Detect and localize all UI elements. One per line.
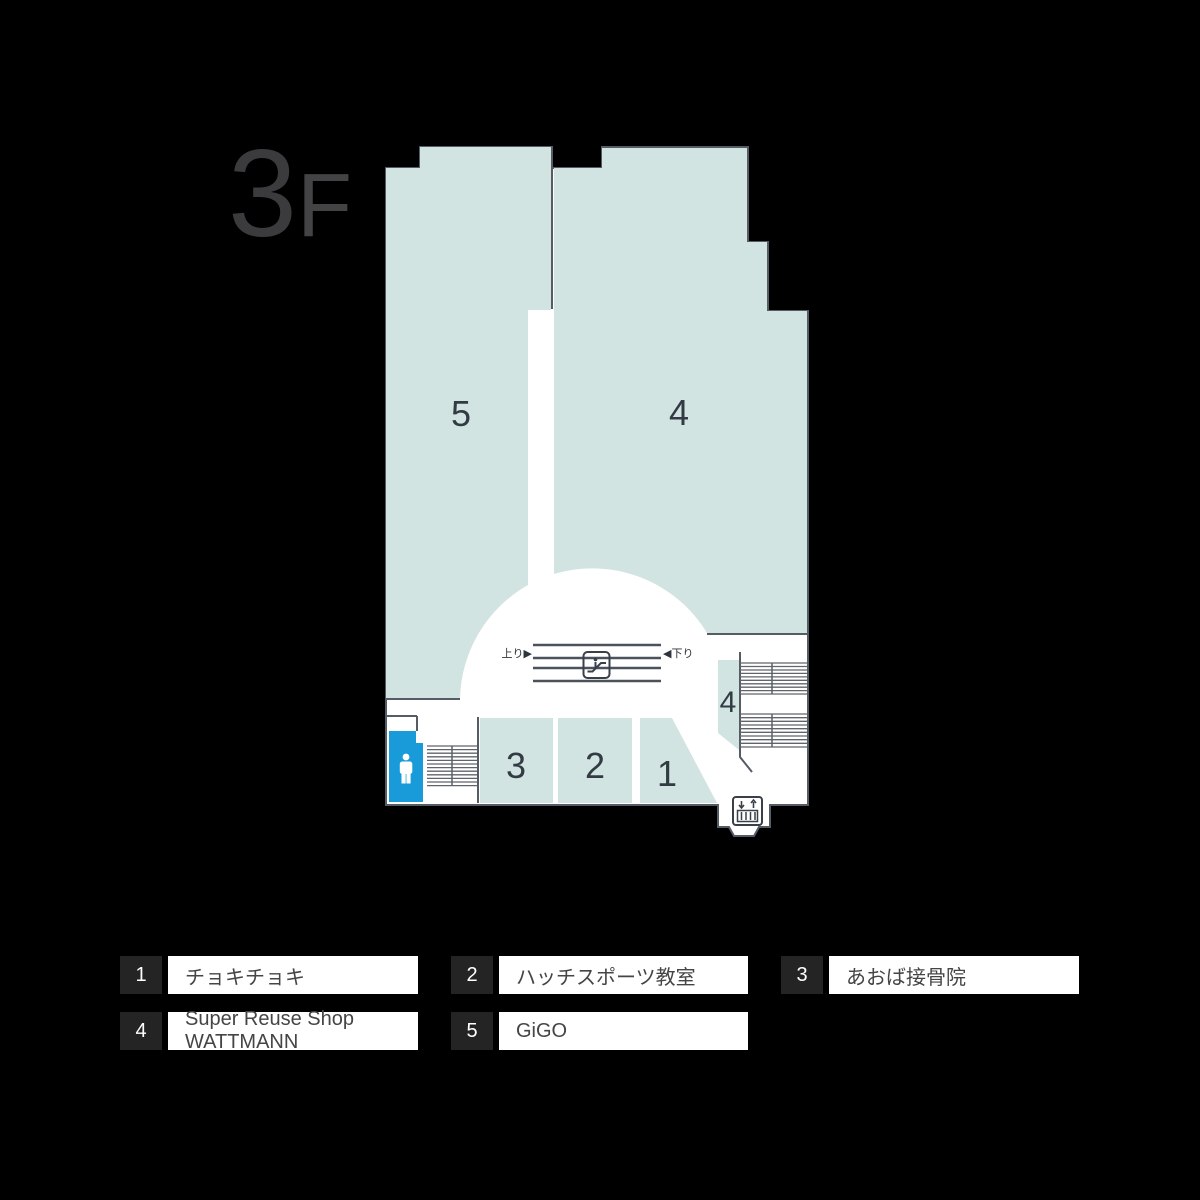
escalator-up-label: 上り▶ xyxy=(502,647,533,660)
area-label-4-annex: 4 xyxy=(720,686,737,719)
escalator-down-label: ◀下り xyxy=(663,647,693,660)
legend-item-2[interactable]: 2 ハッチスポーツ教室 xyxy=(451,956,748,994)
legend-number: 2 xyxy=(451,956,493,994)
legend-item-5[interactable]: 5 GiGO xyxy=(451,1012,748,1050)
legend-number: 4 xyxy=(120,1012,162,1050)
area-label-4: 4 xyxy=(669,392,689,433)
legend-item-3[interactable]: 3 あおば接骨院 xyxy=(781,956,1079,994)
legend-number: 5 xyxy=(451,1012,493,1050)
legend-number: 3 xyxy=(781,956,823,994)
legend-shop-name: あおば接骨院 xyxy=(829,956,1079,994)
legend-item-4[interactable]: 4 Super Reuse Shop WATTMANN xyxy=(120,1012,418,1050)
legend-number: 1 xyxy=(120,956,162,994)
area-label-2: 2 xyxy=(585,745,605,786)
legend-shop-name: チョキチョキ xyxy=(168,956,418,994)
floor-map-page: 3 F xyxy=(0,0,1200,1200)
legend-shop-name: GiGO xyxy=(499,1012,748,1050)
legend-item-1[interactable]: 1 チョキチョキ xyxy=(120,956,418,994)
area-label-1: 1 xyxy=(657,753,677,794)
area-label-5: 5 xyxy=(451,393,471,434)
legend-shop-name: ハッチスポーツ教室 xyxy=(499,956,748,994)
legend-shop-name: Super Reuse Shop WATTMANN xyxy=(168,1012,418,1050)
area-4-shape xyxy=(554,148,807,633)
area-label-3: 3 xyxy=(506,745,526,786)
